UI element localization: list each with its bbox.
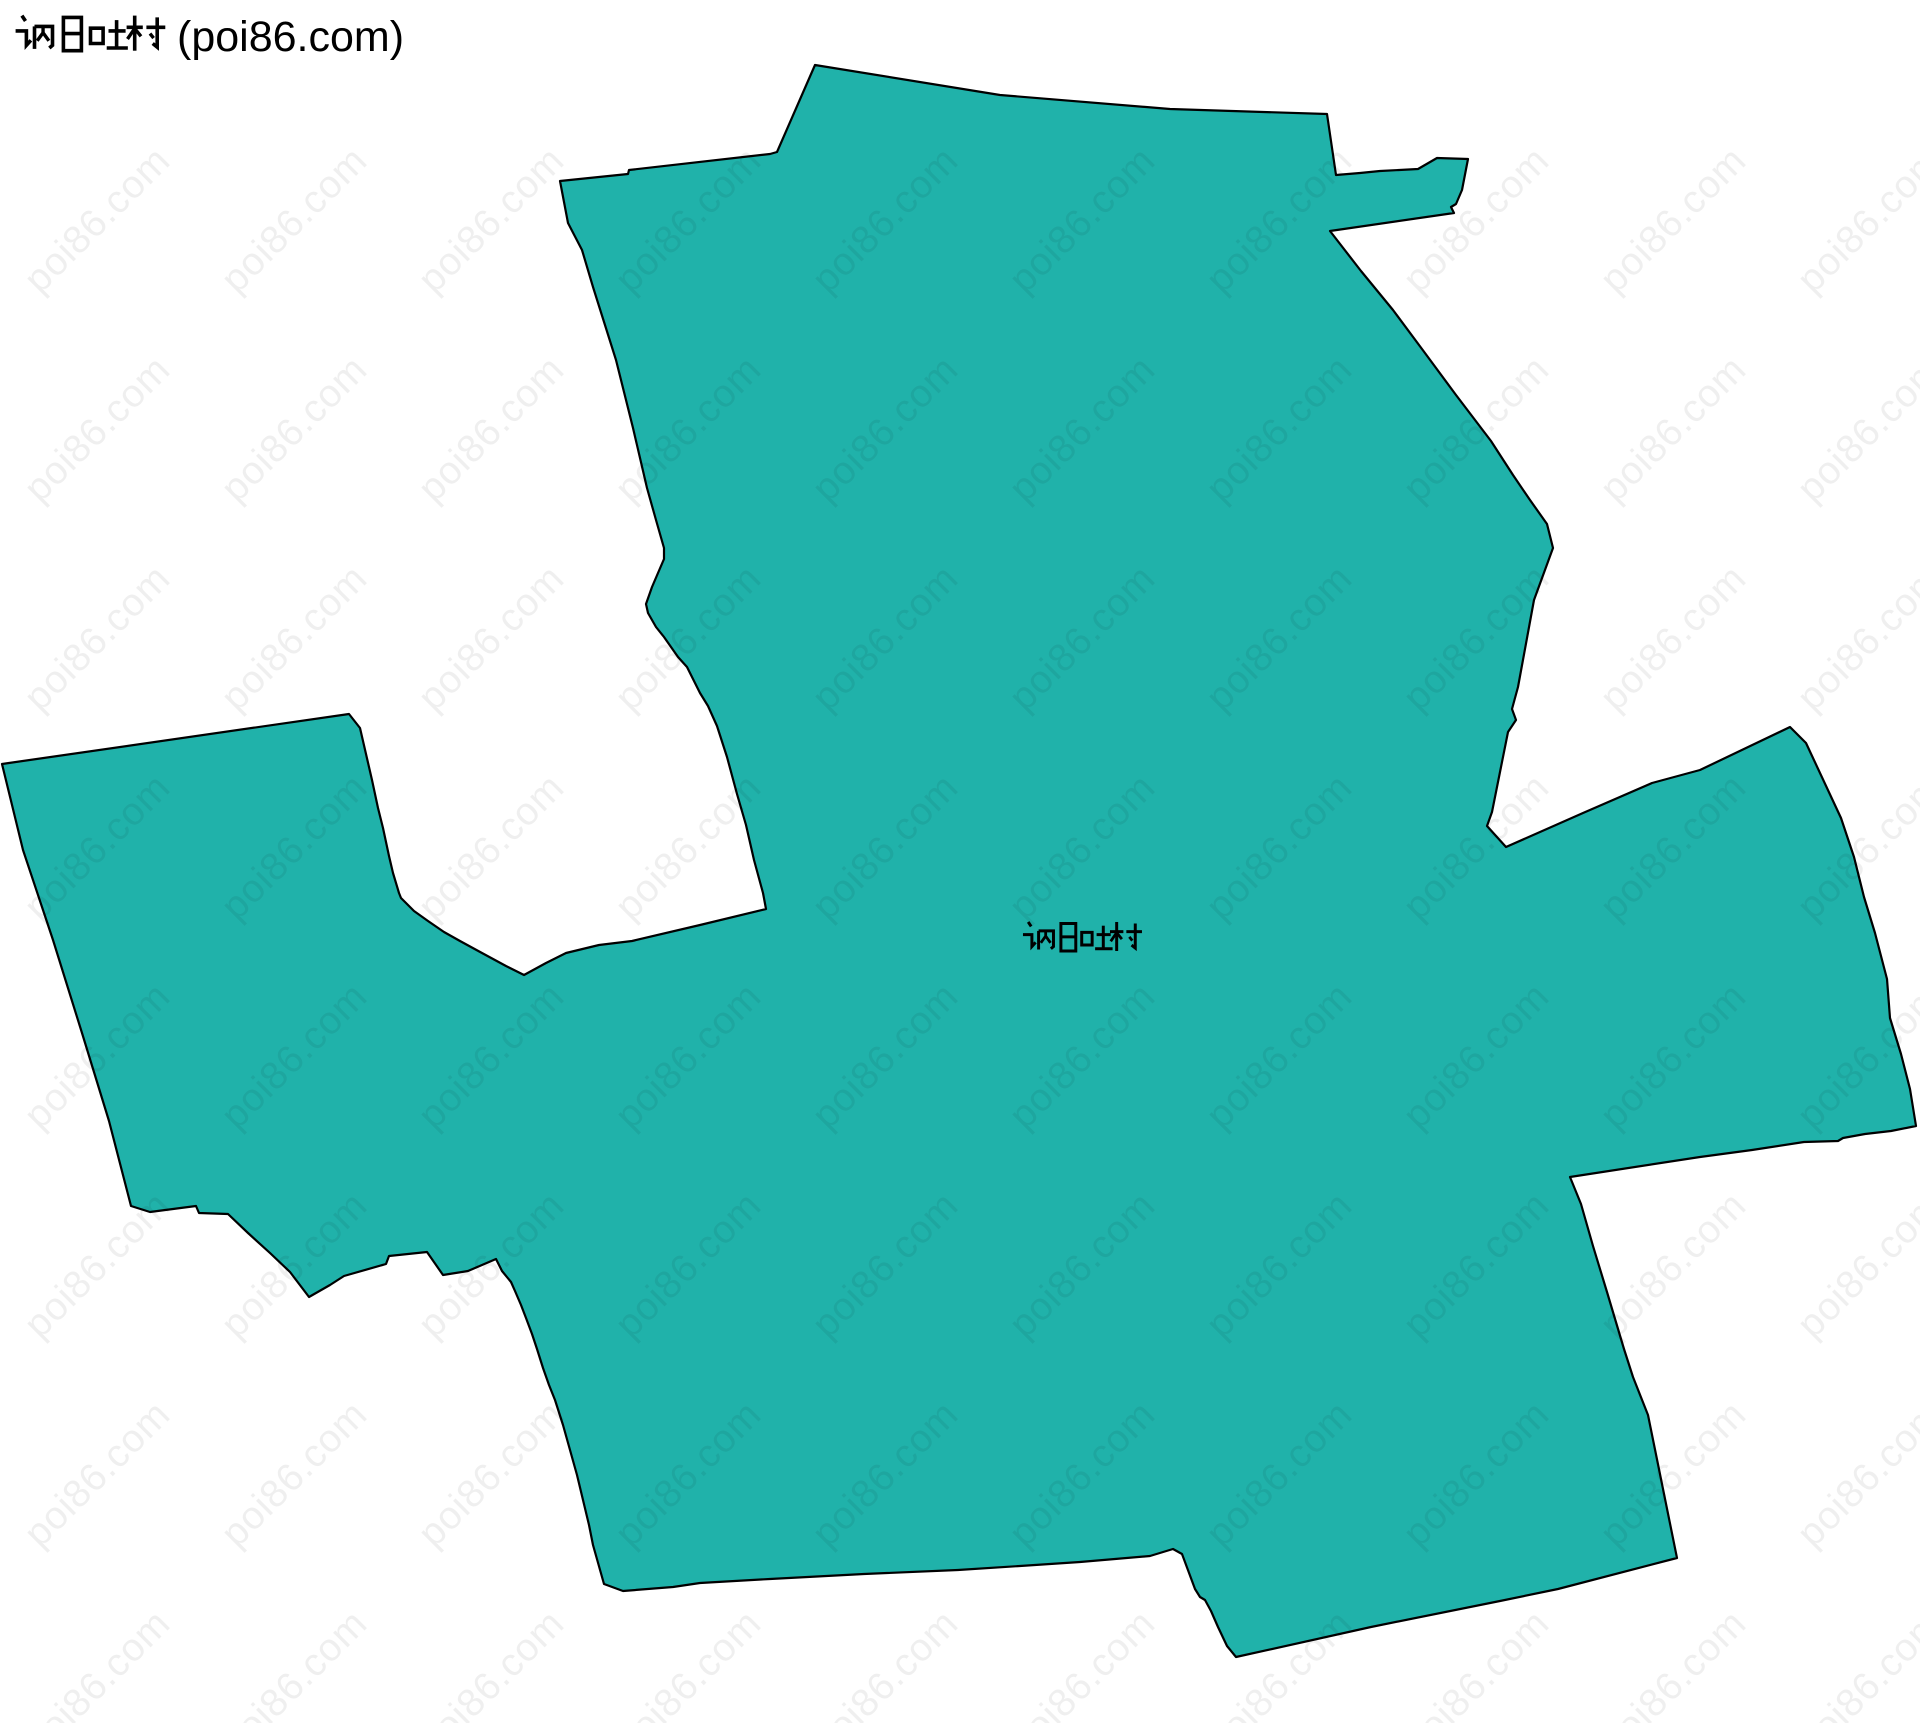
svg-text:poi86.com: poi86.com — [410, 557, 573, 720]
svg-text:poi86.com: poi86.com — [1789, 348, 1920, 511]
svg-text:poi86.com: poi86.com — [410, 766, 573, 929]
svg-text:poi86.com: poi86.com — [1001, 1602, 1164, 1723]
svg-text:poi86.com: poi86.com — [213, 557, 376, 720]
svg-text:poi86.com: poi86.com — [1592, 139, 1755, 302]
svg-text:poi86.com: poi86.com — [410, 1602, 573, 1723]
svg-text:poi86.com: poi86.com — [410, 348, 573, 511]
svg-text:poi86.com: poi86.com — [213, 1393, 376, 1556]
svg-text:poi86.com: poi86.com — [1789, 1184, 1920, 1347]
svg-text:poi86.com: poi86.com — [804, 1602, 967, 1723]
svg-text:poi86.com: poi86.com — [16, 557, 179, 720]
svg-text:poi86.com: poi86.com — [1789, 139, 1920, 302]
svg-text:poi86.com: poi86.com — [607, 766, 770, 929]
svg-text:poi86.com: poi86.com — [410, 139, 573, 302]
svg-text:poi86.com: poi86.com — [16, 348, 179, 511]
svg-text:poi86.com: poi86.com — [410, 1393, 573, 1556]
svg-text:poi86.com: poi86.com — [213, 139, 376, 302]
svg-text:poi86.com: poi86.com — [1789, 1393, 1920, 1556]
svg-text:(poi86.com): (poi86.com) — [177, 13, 404, 61]
svg-text:poi86.com: poi86.com — [213, 1602, 376, 1723]
svg-text:poi86.com: poi86.com — [1395, 1602, 1558, 1723]
svg-text:poi86.com: poi86.com — [1592, 557, 1755, 720]
svg-text:poi86.com: poi86.com — [1592, 348, 1755, 511]
svg-text:poi86.com: poi86.com — [16, 1184, 179, 1347]
svg-text:poi86.com: poi86.com — [607, 1602, 770, 1723]
svg-text:poi86.com: poi86.com — [16, 1602, 179, 1723]
svg-text:poi86.com: poi86.com — [213, 348, 376, 511]
svg-text:poi86.com: poi86.com — [1395, 139, 1558, 302]
svg-text:poi86.com: poi86.com — [16, 139, 179, 302]
svg-text:poi86.com: poi86.com — [1789, 1602, 1920, 1723]
svg-text:poi86.com: poi86.com — [16, 1393, 179, 1556]
svg-text:poi86.com: poi86.com — [1789, 557, 1920, 720]
svg-text:poi86.com: poi86.com — [1592, 1184, 1755, 1347]
svg-text:poi86.com: poi86.com — [1592, 1602, 1755, 1723]
